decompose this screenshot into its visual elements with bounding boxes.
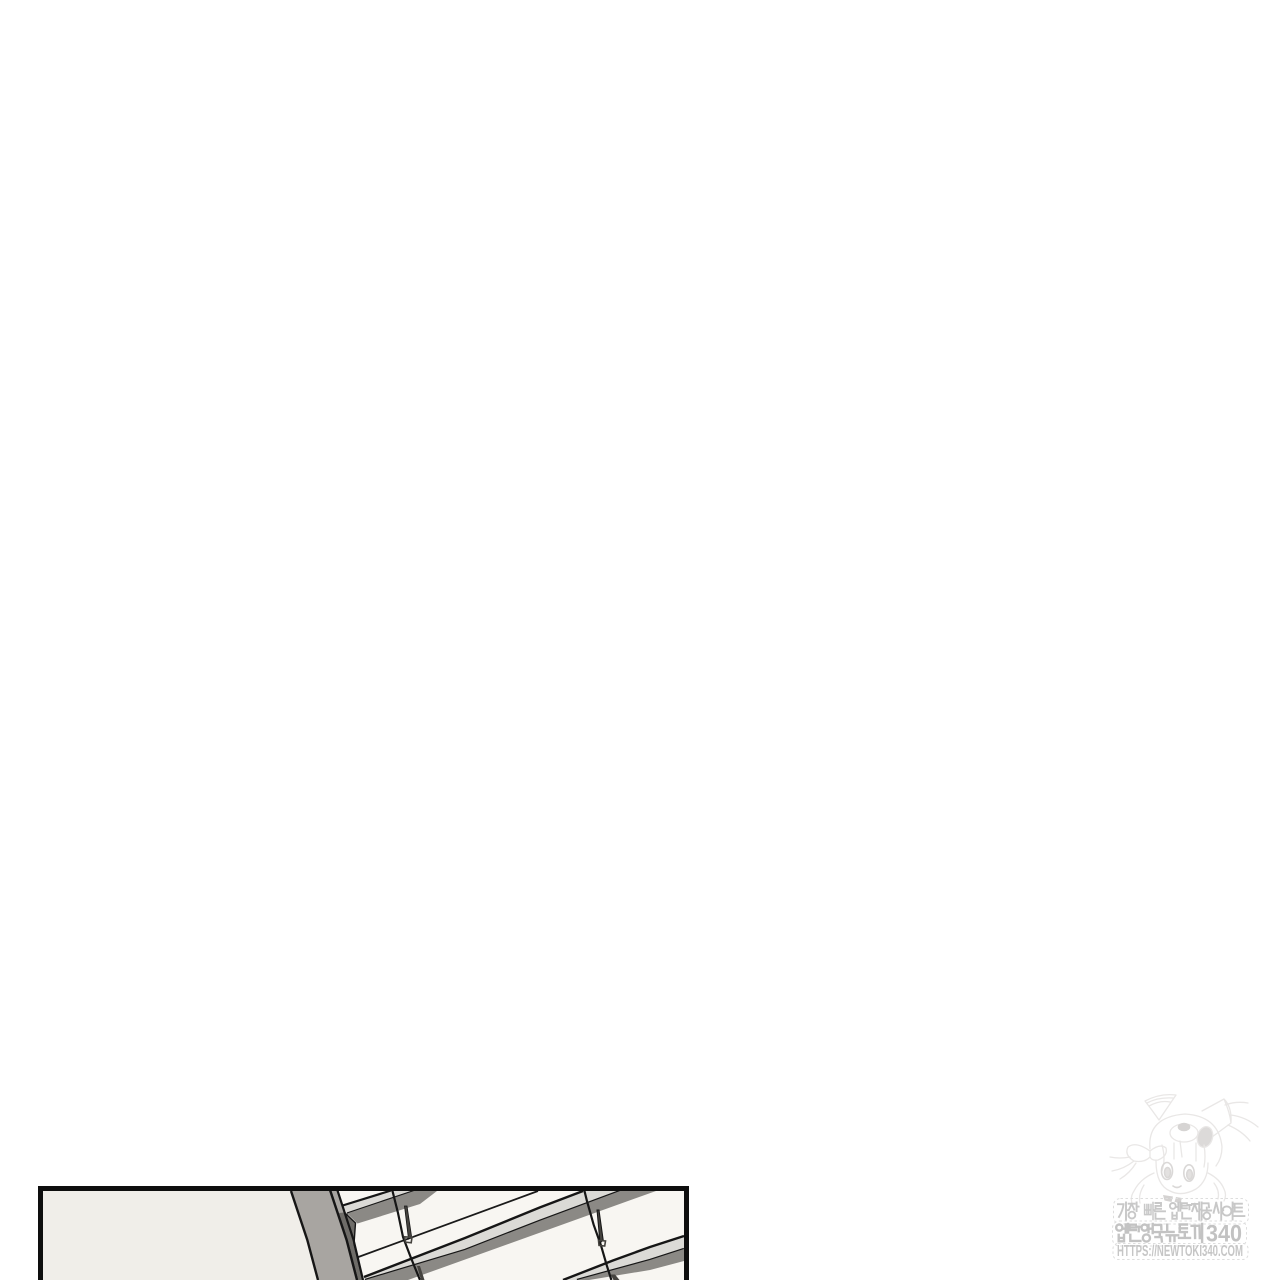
svg-text:HTTPS://NEWTOKI340.COM: HTTPS://NEWTOKI340.COM [1117,1243,1243,1260]
